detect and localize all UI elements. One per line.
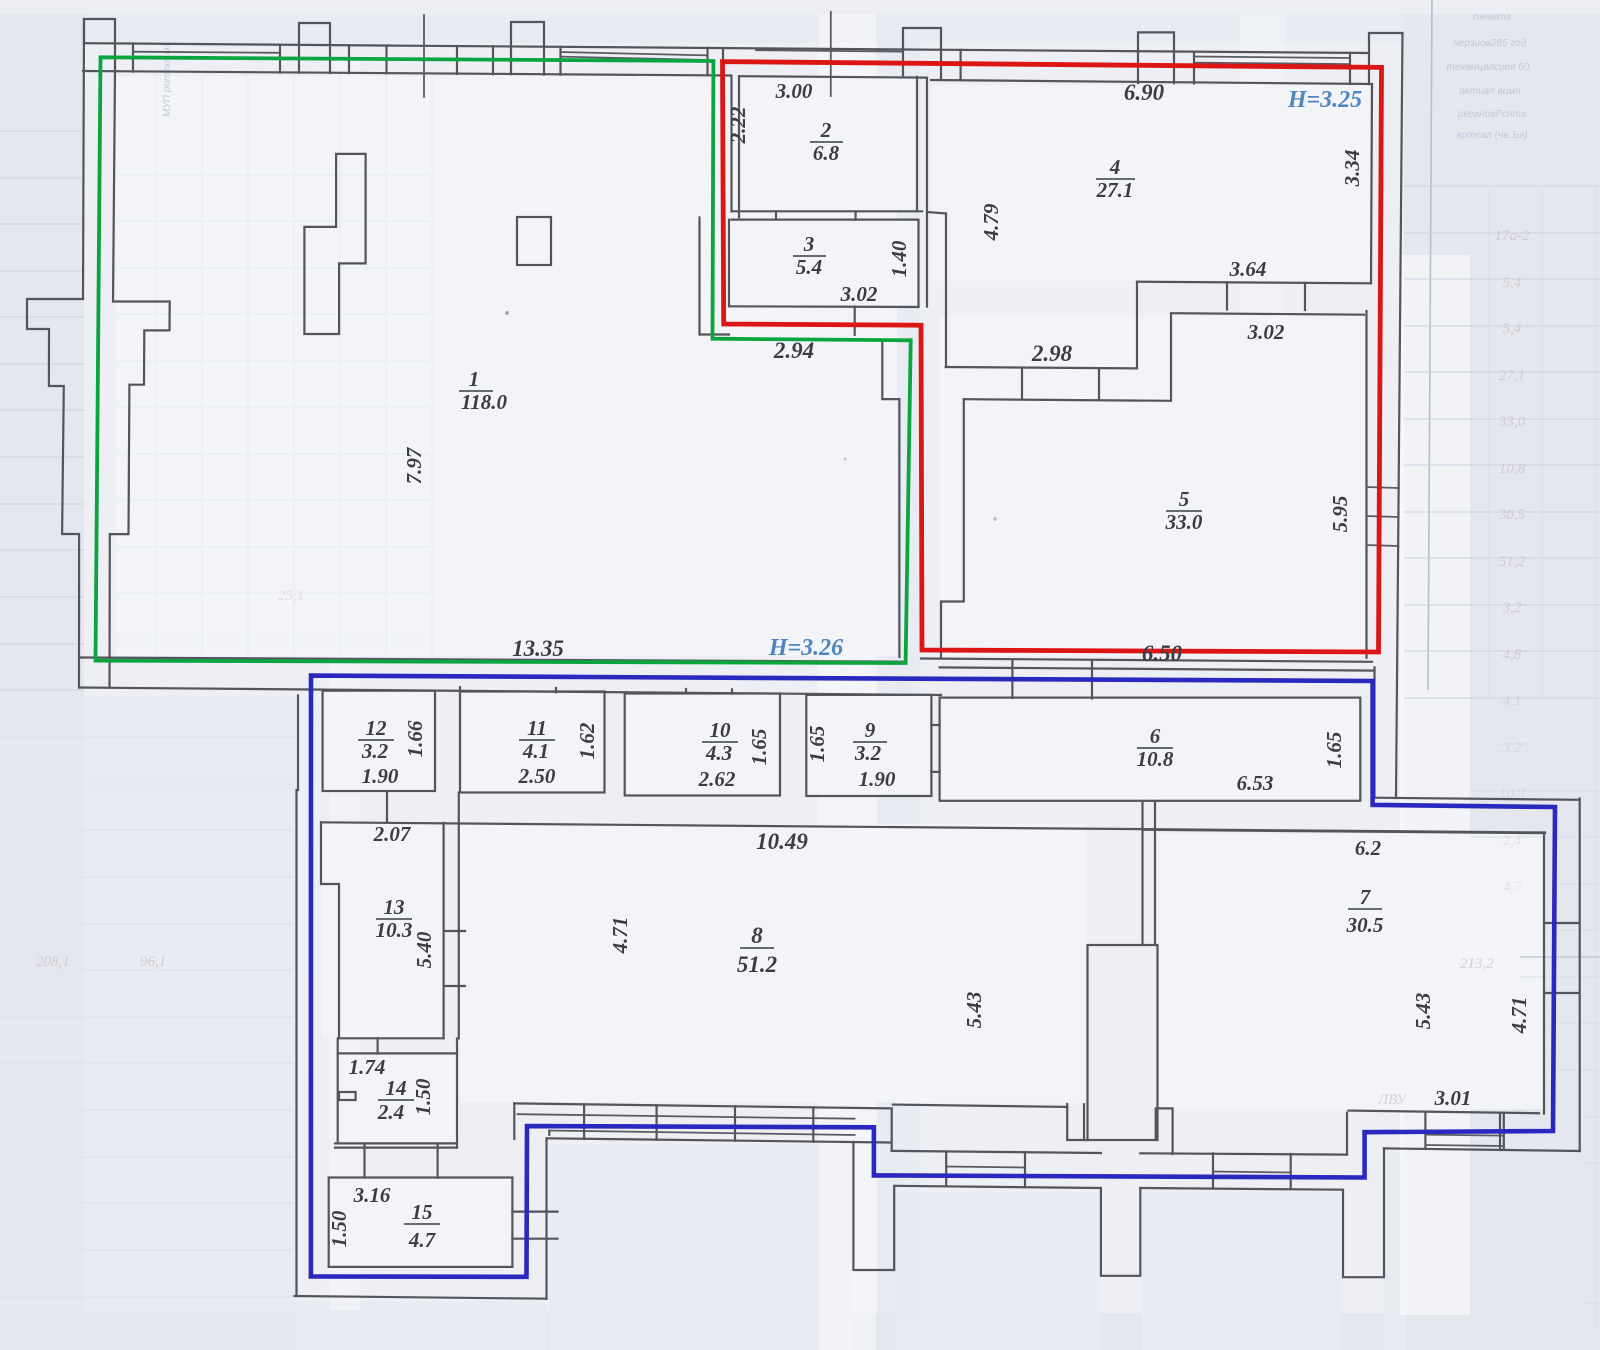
svg-text:теквмцалсиея 60: теквмцалсиея 60 bbox=[1447, 62, 1530, 73]
svg-text:7.97: 7.97 bbox=[402, 446, 426, 484]
svg-text:5: 5 bbox=[1179, 487, 1190, 511]
svg-text:ЛВУ: ЛВУ bbox=[1377, 1092, 1408, 1108]
svg-text:17а-2: 17а-2 bbox=[1495, 228, 1530, 244]
svg-text:15: 15 bbox=[412, 1200, 433, 1224]
svg-text:3.01: 3.01 bbox=[1434, 1086, 1472, 1110]
svg-text:10,8: 10,8 bbox=[1499, 461, 1526, 477]
svg-text:2: 2 bbox=[820, 118, 832, 142]
svg-text:27,1: 27,1 bbox=[1499, 368, 1525, 384]
svg-text:5,4: 5,4 bbox=[1503, 321, 1522, 337]
svg-text:2.50: 2.50 bbox=[518, 764, 556, 788]
svg-text:3: 3 bbox=[803, 232, 815, 256]
svg-text:33.0: 33.0 bbox=[1165, 510, 1203, 534]
svg-text:96,1: 96,1 bbox=[140, 954, 166, 970]
svg-text:2.07: 2.07 bbox=[373, 822, 412, 846]
svg-text:208,1: 208,1 bbox=[36, 954, 70, 970]
svg-text:1.62: 1.62 bbox=[575, 722, 599, 759]
svg-text:H=3.26: H=3.26 bbox=[768, 635, 843, 661]
svg-text:1.65: 1.65 bbox=[1322, 732, 1346, 769]
svg-text:12: 12 bbox=[366, 716, 388, 740]
svg-text:1: 1 bbox=[469, 367, 480, 391]
svg-text:7: 7 bbox=[1360, 885, 1372, 909]
svg-text:H=3.25: H=3.25 bbox=[1287, 87, 1362, 113]
svg-text:3.00: 3.00 bbox=[775, 79, 813, 103]
svg-text:4.3: 4.3 bbox=[705, 741, 732, 765]
svg-text:3.2: 3.2 bbox=[854, 741, 882, 765]
svg-text:3.34: 3.34 bbox=[1340, 150, 1364, 188]
svg-text:14: 14 bbox=[386, 1076, 407, 1100]
svg-text:11: 11 bbox=[527, 716, 547, 740]
svg-text:2.4: 2.4 bbox=[377, 1100, 404, 1124]
svg-text:3.2: 3.2 bbox=[361, 739, 389, 763]
svg-text:4.79: 4.79 bbox=[979, 203, 1003, 241]
svg-text:25,1: 25,1 bbox=[278, 588, 304, 604]
svg-text:4.71: 4.71 bbox=[608, 917, 632, 955]
svg-text:27.1: 27.1 bbox=[1096, 178, 1134, 202]
svg-text:актиал вимп: актиал вимп bbox=[1459, 86, 1521, 97]
svg-text:10.49: 10.49 bbox=[756, 829, 808, 854]
svg-text:3,2: 3,2 bbox=[1502, 740, 1522, 756]
svg-text:9: 9 bbox=[865, 718, 876, 742]
svg-text:213,2: 213,2 bbox=[1460, 956, 1494, 972]
svg-text:10.3: 10.3 bbox=[376, 918, 413, 942]
svg-text:1.74: 1.74 bbox=[349, 1055, 386, 1079]
svg-text:30,5: 30,5 bbox=[1498, 507, 1526, 523]
svg-text:51.2: 51.2 bbox=[737, 952, 777, 977]
svg-text:10: 10 bbox=[710, 718, 732, 742]
svg-text:3.64: 3.64 bbox=[1229, 257, 1267, 281]
svg-text:5.4: 5.4 bbox=[796, 255, 822, 279]
svg-text:6: 6 bbox=[1150, 724, 1161, 748]
svg-text:вртеал (чв.Ъг): вртеал (чв.Ъг) bbox=[1456, 130, 1527, 141]
svg-text:1.40: 1.40 bbox=[887, 240, 911, 277]
svg-text:1.90: 1.90 bbox=[859, 767, 896, 791]
svg-text:2.62: 2.62 bbox=[698, 767, 736, 791]
svg-text:4,7: 4,7 bbox=[1503, 879, 1523, 895]
svg-text:МУП ротеха мз: МУП ротеха мз bbox=[162, 43, 173, 117]
svg-text:1.65: 1.65 bbox=[747, 729, 771, 766]
svg-text:6.90: 6.90 bbox=[1124, 80, 1165, 105]
svg-text:пжчмта: пжчмта bbox=[1473, 12, 1511, 23]
svg-text:5,4: 5,4 bbox=[1503, 275, 1522, 291]
svg-text:10.8: 10.8 bbox=[1137, 747, 1174, 771]
svg-text:черзиов285 год: черзиов285 год bbox=[1454, 38, 1527, 49]
svg-text:5.95: 5.95 bbox=[1328, 496, 1352, 533]
svg-text:5.43: 5.43 bbox=[962, 992, 986, 1029]
svg-text:1.90: 1.90 bbox=[362, 764, 399, 788]
svg-text:8: 8 bbox=[751, 923, 763, 948]
svg-text:2.22: 2.22 bbox=[726, 106, 750, 144]
svg-text:4.7: 4.7 bbox=[408, 1228, 437, 1252]
svg-text:4.1: 4.1 bbox=[522, 739, 549, 763]
svg-text:13.35: 13.35 bbox=[512, 636, 564, 661]
svg-text:1.50: 1.50 bbox=[411, 1078, 435, 1115]
svg-text:30.5: 30.5 bbox=[1346, 913, 1384, 937]
svg-text:118.0: 118.0 bbox=[461, 390, 508, 414]
svg-text:3,2: 3,2 bbox=[1502, 600, 1522, 616]
svg-text:1.66: 1.66 bbox=[403, 720, 427, 757]
svg-text:6.53: 6.53 bbox=[1237, 771, 1274, 795]
svg-text:51,2: 51,2 bbox=[1499, 554, 1526, 570]
svg-text:4,1: 4,1 bbox=[1503, 693, 1522, 709]
svg-text:3.02: 3.02 bbox=[840, 282, 878, 306]
svg-text:ркеановРснта: ркеановРснта bbox=[1457, 109, 1527, 120]
svg-text:6.8: 6.8 bbox=[813, 141, 840, 165]
svg-text:4.71: 4.71 bbox=[1507, 997, 1531, 1035]
svg-text:6.50: 6.50 bbox=[1142, 641, 1183, 666]
svg-text:33,0: 33,0 bbox=[1498, 414, 1526, 430]
svg-text:2,4: 2,4 bbox=[1503, 833, 1522, 849]
svg-text:4,8: 4,8 bbox=[1503, 647, 1522, 663]
svg-text:5.40: 5.40 bbox=[412, 931, 436, 968]
svg-text:5.43: 5.43 bbox=[1411, 993, 1435, 1030]
svg-text:1.65: 1.65 bbox=[805, 726, 829, 763]
svg-text:1.50: 1.50 bbox=[327, 1210, 351, 1247]
svg-text:2.94: 2.94 bbox=[773, 338, 814, 363]
svg-text:13: 13 bbox=[384, 895, 405, 919]
svg-text:6.2: 6.2 bbox=[1355, 836, 1382, 860]
svg-text:3.02: 3.02 bbox=[1247, 320, 1285, 344]
svg-text:3.16: 3.16 bbox=[353, 1183, 391, 1207]
svg-text:2.98: 2.98 bbox=[1031, 341, 1073, 366]
svg-text:4: 4 bbox=[1109, 155, 1121, 179]
